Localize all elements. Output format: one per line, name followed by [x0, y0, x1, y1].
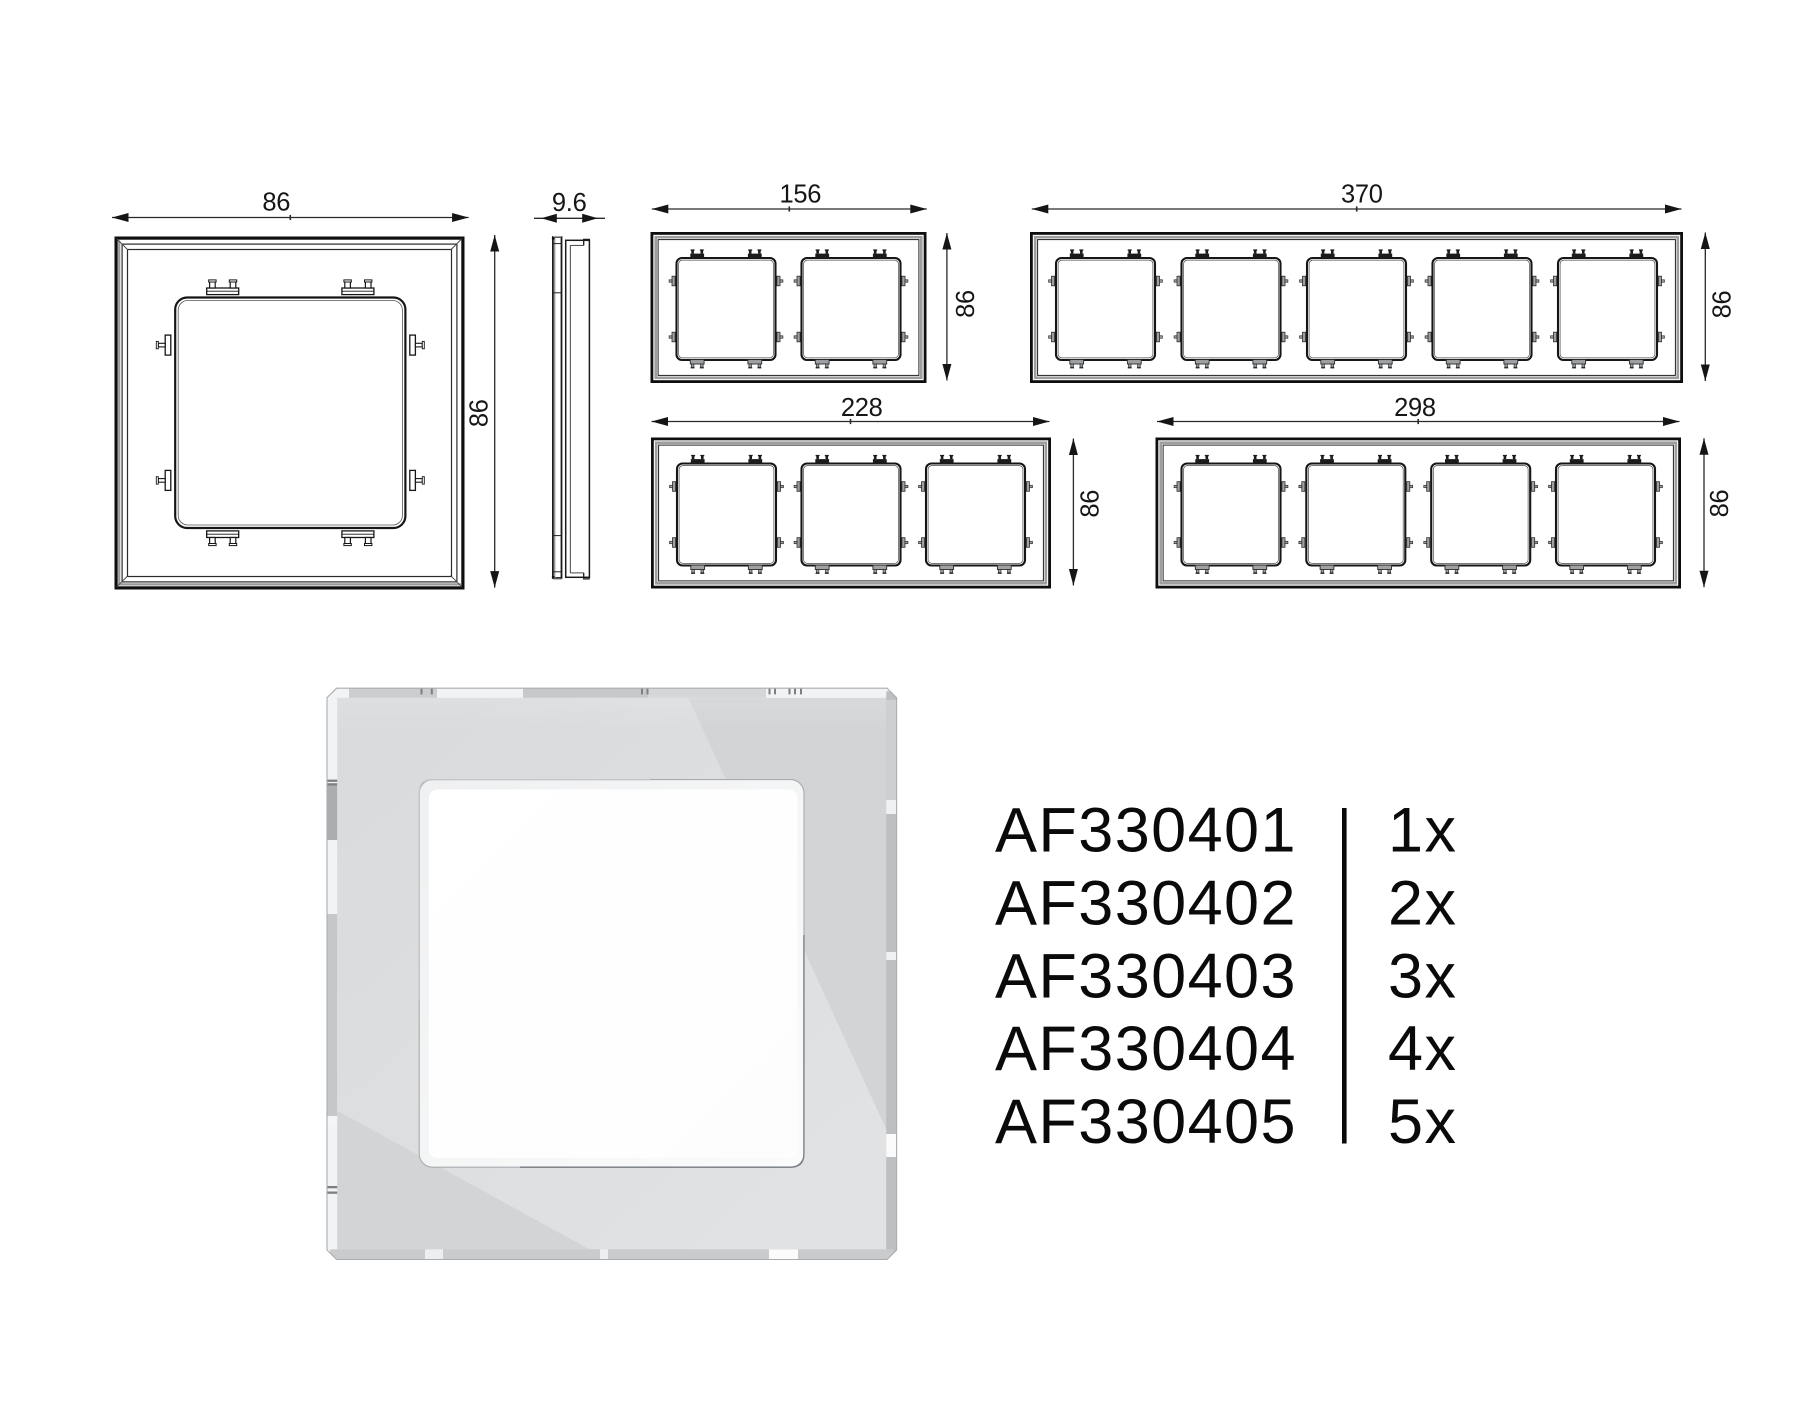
svg-text:86: 86: [1076, 490, 1104, 518]
svg-text:86: 86: [262, 188, 290, 216]
svg-text:86: 86: [1709, 291, 1737, 319]
svg-text:1x: 1x: [1388, 796, 1457, 866]
svg-text:298: 298: [1394, 394, 1436, 422]
svg-text:86: 86: [952, 290, 980, 318]
svg-text:5x: 5x: [1388, 1087, 1457, 1157]
svg-text:AF330405: AF330405: [995, 1087, 1297, 1157]
svg-text:228: 228: [841, 394, 883, 422]
svg-text:86: 86: [1706, 490, 1734, 518]
svg-text:2x: 2x: [1388, 868, 1457, 938]
svg-text:AF330403: AF330403: [995, 941, 1297, 1011]
svg-text:3x: 3x: [1388, 941, 1457, 1011]
svg-text:AF330404: AF330404: [995, 1014, 1297, 1084]
svg-text:370: 370: [1341, 180, 1383, 208]
svg-text:AF330402: AF330402: [995, 868, 1297, 938]
svg-text:9.6: 9.6: [552, 189, 587, 217]
svg-text:156: 156: [779, 181, 821, 209]
svg-text:4x: 4x: [1388, 1014, 1457, 1084]
svg-text:86: 86: [465, 399, 493, 427]
svg-text:AF330401: AF330401: [995, 796, 1297, 866]
